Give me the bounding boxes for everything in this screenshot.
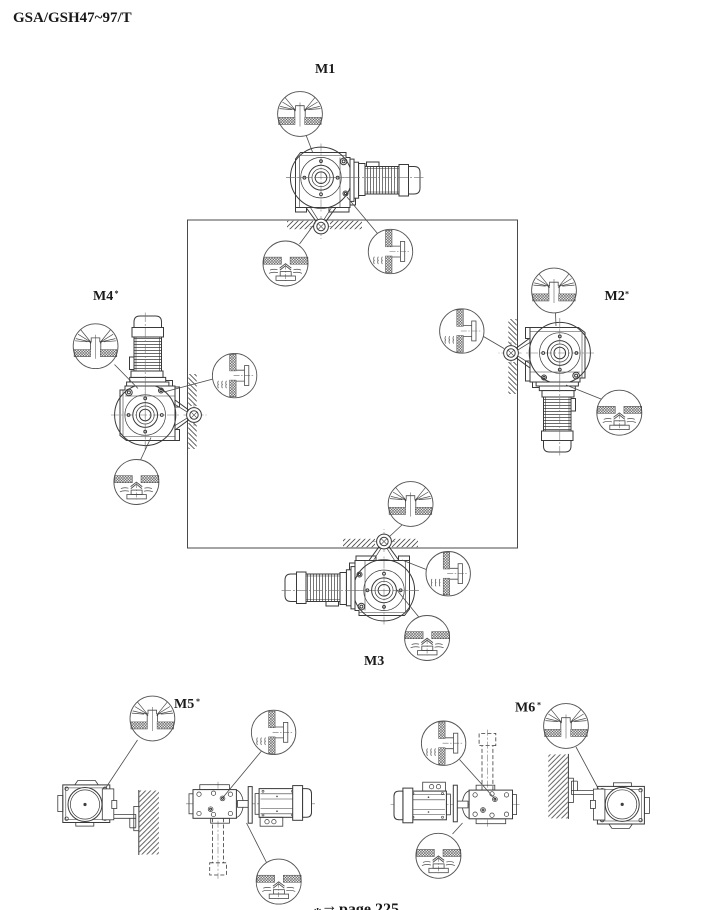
svg-text:*: * [537,701,541,710]
svg-text:*: * [115,289,119,298]
svg-text:→: → [321,896,338,910]
svg-text:*: * [625,290,629,299]
svg-text:M1: M1 [315,62,335,77]
svg-text:M4: M4 [93,289,113,304]
svg-text:page 225: page 225 [339,901,399,910]
svg-text:M3: M3 [364,654,384,669]
svg-text:M5: M5 [174,697,194,712]
svg-text:*: * [196,697,200,706]
svg-text:M6: M6 [515,701,535,716]
svg-text:GSA/GSH47~97/T: GSA/GSH47~97/T [13,10,132,26]
svg-text:M2: M2 [605,289,625,304]
